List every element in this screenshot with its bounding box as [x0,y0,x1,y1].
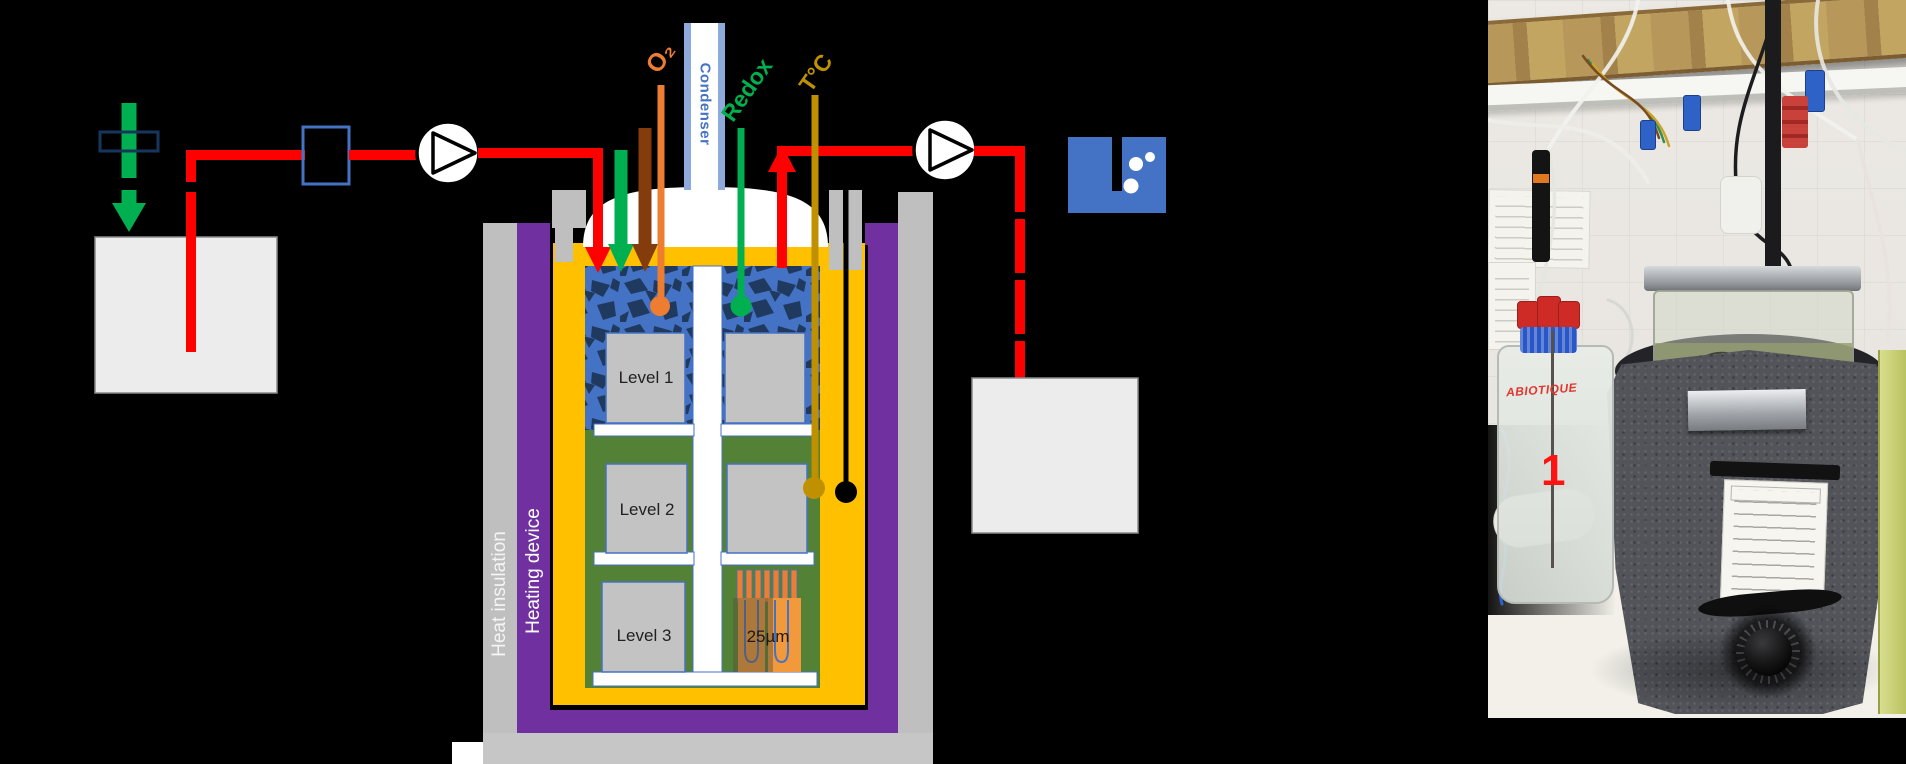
feed-arrow-head [112,203,146,232]
filter-unit [303,127,349,184]
heat-insulation-right [898,192,933,764]
glass-joint [1720,176,1762,234]
reactor-clamp [1644,266,1861,291]
level3-label: Level 3 [617,626,672,646]
heat-insulation-label: Heat insulation [489,531,511,657]
condenser-rod [1765,0,1781,270]
blue-connector-3 [1805,70,1825,112]
red-cap-3 [1558,301,1580,329]
microchannel-structure [733,570,801,672]
media-bottle-right [1878,350,1906,714]
shelf3-bottom [593,672,817,686]
heating-device-bottom [517,710,898,733]
flange-right-b [848,190,862,270]
flange-left-lower [555,226,573,262]
temperature-probe-tip [803,477,825,499]
condenser-wall-left [684,23,691,190]
mantle-label [1720,479,1828,607]
electrode-probe [1532,150,1550,262]
heating-device-left [517,223,550,733]
condenser-label: Condenser [697,63,714,146]
red-cap-1 [1517,301,1539,329]
harvest-assembly [914,119,1166,533]
cube-level2-right [727,464,807,553]
blue-screw-cap [1520,327,1577,353]
level1-label: Level 1 [619,368,674,388]
feed-assembly [95,103,479,393]
flange-left [552,190,586,228]
stirrer-shaft [693,266,722,673]
bubble-trap [1068,137,1166,213]
blue-connector-2 [1640,120,1656,150]
shelf2-left [594,552,694,565]
mantle-metal-plate [1688,389,1807,431]
electrode-band [1533,174,1549,183]
shelf2-right [721,552,814,565]
o2-probe-tip [650,296,670,316]
level2-label: Level 2 [620,500,675,520]
lab-photo: ABIOTIQUE 1 [1488,0,1906,718]
redox-probe-tip [731,296,752,317]
figure-canvas: O₂ Condenser Redox T°C Heat insulation H… [0,0,1906,764]
microchannel-label: 25µm [747,627,790,647]
reactor-assembly [452,23,933,764]
cube-level1-right [725,333,805,423]
heating-device-right [865,223,898,733]
heating-device-label: Heating device [523,508,545,634]
heat-insulation-left [483,223,517,764]
heat-insulation-bottom [483,733,933,764]
mantle-shadow [1588,630,1893,710]
item-number-marker: 1 [1541,446,1565,496]
wall-probe-tip [835,481,857,503]
red-cap-fitting [1782,96,1808,148]
flange-right-a [829,190,843,270]
harvest-reservoir [972,378,1138,533]
shelf1-right [721,424,814,436]
shelf1-left [594,424,694,436]
blue-connector-1 [1683,95,1701,131]
pipe-pump2-out [974,151,1020,162]
